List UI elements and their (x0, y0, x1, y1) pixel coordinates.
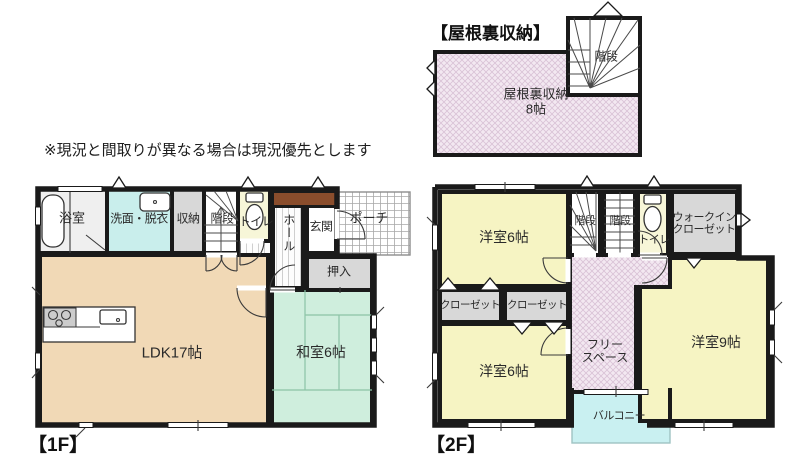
opening-bedroom-nw (566, 259, 571, 282)
vent-triangle-toilet-2f (647, 176, 661, 187)
attic-vent-triangle-left1 (427, 60, 435, 76)
second-floor-title: 【2F】 (426, 430, 486, 457)
vent-triangle-entrance (311, 177, 325, 188)
attic-plan-drawing (426, 0, 648, 164)
room-oshiire (307, 257, 372, 290)
opening-entrance (335, 209, 340, 239)
kitchen-counter (43, 307, 135, 342)
room-porch (337, 192, 410, 255)
opening-hall-ldk (237, 286, 266, 291)
attic-vent-triangle-top (594, 2, 622, 16)
second-floor-plan: 洋室6帖 クローゼット クローゼット 洋室6帖 階段 階段 トイレ ウォークイン… (424, 175, 800, 471)
room-washitsu (272, 290, 372, 425)
first-floor-drawing (30, 175, 418, 459)
room-bedroom-nw (440, 192, 568, 286)
room-wic (672, 192, 737, 254)
room-bedroom-sw (440, 324, 568, 421)
room-storage-1f (172, 189, 204, 253)
room-hall (273, 206, 303, 288)
vent-triangle-toilet-1f (241, 177, 255, 188)
attic-plan: 屋根裏収納 8帖 階段 (426, 0, 648, 164)
first-floor-plan: 浴室 洗面・脱衣 収納 階段 トイレ ホール 玄関 ポーチ 押入 LDK17帖 … (30, 175, 418, 459)
first-floor-title: 【1F】 (28, 430, 88, 457)
opening-stairs-up (608, 253, 631, 258)
opening-bedroom-sw (566, 329, 571, 354)
attic-vent-triangle-left2 (427, 81, 435, 97)
second-floor-drawing (424, 175, 800, 471)
floorplan-page: ※現況と間取りが異なる場合は現況優先とします 【屋根裏収納】 屋根裏収納 8帖 (0, 0, 800, 473)
shoe-cabinet (273, 192, 337, 206)
room-closet-mid (505, 290, 568, 322)
opening-toilet-1f (240, 239, 264, 244)
vent-triangle-stairs-2f (580, 176, 594, 187)
disclaimer-note: ※現況と間取りが異なる場合は現況優先とします (44, 139, 372, 160)
vent-triangle-wic (741, 213, 750, 227)
washroom-sink (140, 193, 170, 211)
opening-stairs-down (574, 253, 596, 258)
toilet-2f-fixture (644, 195, 661, 232)
room-closet-left (440, 290, 501, 322)
toilet-1f-fixture (246, 193, 263, 230)
vent-triangle-washroom (112, 177, 126, 188)
room-entrance (307, 206, 336, 253)
